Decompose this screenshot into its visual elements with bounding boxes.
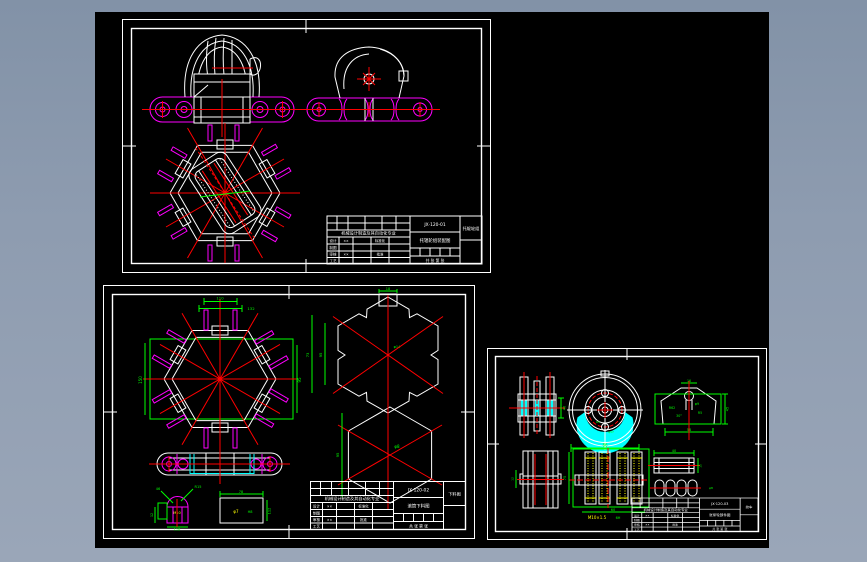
dim-dome-t: 12 xyxy=(150,513,154,517)
check-label: 审核 xyxy=(329,252,337,257)
dim-sect-h: 75 xyxy=(563,476,567,480)
dimension-lines xyxy=(654,450,698,473)
dimension-lines xyxy=(220,491,267,521)
assembly-name: 托辊轮组 xyxy=(463,225,480,232)
drawing-title: 托辊轮组装配图 xyxy=(420,237,451,244)
hexagon-assembly-dimensioned: 150 95 110 132 xyxy=(138,296,302,461)
pulley-section-view: 40 xyxy=(509,372,567,438)
dim-pent-ang: 30° xyxy=(676,414,682,418)
centerlines xyxy=(142,79,302,137)
dim-rect-w: 78 xyxy=(239,490,243,494)
dim-plan-t: 12 xyxy=(511,477,515,481)
dimension-lines xyxy=(145,298,297,415)
sheet-border xyxy=(487,348,767,540)
plate-detail-view: 78 112 φ7 H8 xyxy=(220,490,272,523)
dome-detail-view: 118 12 R15 46 M10 xyxy=(150,485,201,532)
dim-bar-l: 40 xyxy=(672,449,676,453)
design-label: 设计 xyxy=(329,238,337,243)
dim-pent-r: R62 xyxy=(669,406,675,410)
dim-pent-bore: φ9 xyxy=(695,402,699,406)
dim-roller-d: φ8 xyxy=(709,486,713,490)
hexagon-assembly-view xyxy=(150,123,300,263)
signature: ×× xyxy=(645,524,649,527)
wheel-front-view: 86 φ57 R4 xyxy=(567,370,643,453)
project-name: 机械设计制造及其自动化专业 xyxy=(644,507,688,512)
dim-hex2-bore: φ8 xyxy=(394,444,400,449)
signature: ×× xyxy=(327,505,333,509)
std-label: 标准化 xyxy=(375,238,386,243)
frame-plan-view: 12 xyxy=(511,451,565,508)
title-block: 机械设计制造及其自动化专业 设计 制图 审核 工艺 ×× ×× 标准化 批准 J… xyxy=(632,498,758,532)
dim-sect-w: 60 xyxy=(611,508,615,512)
dim-hex2-h: 95 xyxy=(335,452,340,457)
drawing-title: 张紧轮部件图 xyxy=(709,513,731,518)
std-label: 标准化 xyxy=(671,514,680,518)
dim-rect-bore: φ7 xyxy=(233,509,239,514)
approve-label: 批准 xyxy=(377,252,384,257)
part-number: JX·120-01 xyxy=(423,222,445,228)
centerlines xyxy=(517,454,564,505)
centerlines xyxy=(149,445,290,484)
centering-marks xyxy=(103,285,475,539)
dim-notch-h1: 73 xyxy=(305,352,310,357)
thread-callout: M10×1.5 xyxy=(588,515,607,520)
dim-hex-height: 95 xyxy=(297,377,302,383)
signature: ×× xyxy=(327,518,333,522)
front-view-pulley-bracket xyxy=(142,35,302,137)
dim-pulley-w: 40 xyxy=(563,406,567,410)
draft-label: 制图 xyxy=(329,245,337,250)
bracket-plate-view: 58 16 45 R62 φ9 R5 30° xyxy=(655,379,730,440)
sheet-border xyxy=(122,19,491,273)
assembly-name: 绞车 xyxy=(746,504,753,509)
draft-label: 制图 xyxy=(634,518,640,522)
craft-label: 工艺 xyxy=(329,258,337,263)
center-cross xyxy=(597,402,613,418)
roller-bar-view: 40 15 φ8 xyxy=(648,449,713,496)
approve-label: 批准 xyxy=(360,517,367,522)
dim-stud-span2: 132 xyxy=(247,306,255,311)
dim-hex-width: 150 xyxy=(138,376,143,384)
fit-callout: 6H xyxy=(616,516,621,520)
dim-pent-r2: R5 xyxy=(698,411,702,415)
dim-stud-span1: 110 xyxy=(216,296,224,301)
project-name: 机械设计制造及其自动化专业 xyxy=(341,230,395,237)
centerlines xyxy=(569,448,649,508)
craft-label: 工艺 xyxy=(634,528,640,532)
dim-dome-w: 118 xyxy=(174,528,181,532)
dim-wheel-r: R4 xyxy=(596,420,600,424)
assembly-name: 下料图 xyxy=(448,491,461,498)
dim-wheel-od: 86 xyxy=(602,443,608,448)
cad-viewer-window: 机械设计制造及其自动化专业 设计 制图 审核 工艺 ×× ×× 标准化 批准 J… xyxy=(0,0,867,562)
design-label: 设计 xyxy=(634,514,640,518)
drawing-title: 滚筒下料图 xyxy=(408,503,431,510)
sheet-note: 共 张 第 张 xyxy=(426,258,445,263)
hex-plate-view: 95 φ8 xyxy=(335,295,442,510)
check-label: 审核 xyxy=(634,523,640,527)
centering-marks xyxy=(122,19,491,273)
link-bar-view xyxy=(149,445,290,484)
dim-notch-tab: 18 xyxy=(386,287,390,291)
signature: ×× xyxy=(645,514,649,517)
dim-notch-h2: 95 xyxy=(318,352,323,357)
project-name: 机械设计制造及其自动化专业 xyxy=(325,495,379,502)
craft-label: 工艺 xyxy=(313,524,321,529)
centerlines xyxy=(338,295,442,510)
part-number: JX·120-02 xyxy=(407,488,429,494)
dim-rect-h: 112 xyxy=(268,508,272,515)
design-label: 设计 xyxy=(313,504,321,509)
dim-pent-h: 45 xyxy=(726,407,730,411)
check-label: 审核 xyxy=(313,517,321,522)
center-cross xyxy=(357,67,381,91)
dimension-lines xyxy=(312,289,397,393)
sheet-border xyxy=(103,285,475,539)
approve-label: 批准 xyxy=(672,523,678,527)
std-label: 标准化 xyxy=(358,504,369,509)
side-view-pulley-bracket xyxy=(300,47,440,121)
sheet-note: 共 张 第 张 xyxy=(409,524,428,529)
sheet-top-drawing: 机械设计制造及其自动化专业 设计 制图 审核 工艺 ×× ×× 标准化 批准 J… xyxy=(122,19,491,273)
signature: ×× xyxy=(343,253,349,257)
sheet-bottom-right-drawing: 40 86 φ57 R4 xyxy=(487,348,767,540)
radial-centerlines xyxy=(143,299,297,461)
dim-rect-fit: H8 xyxy=(248,510,253,514)
dim-dome-a: 46 xyxy=(156,487,160,491)
sheet-note: 共 张 第 张 xyxy=(712,527,727,532)
assembly-section-view: 75 60 M10×1.5 6H xyxy=(563,448,649,520)
drawing-canvas[interactable]: 机械设计制造及其自动化专业 设计 制图 审核 工艺 ×× ×× 标准化 批准 J… xyxy=(95,12,769,548)
dimension-lines xyxy=(155,489,193,527)
dim-dome-r: R15 xyxy=(195,485,202,489)
dim-wheel-hub: φ57 xyxy=(608,430,614,434)
part-number: JX·120-03 xyxy=(710,502,728,506)
sheet-bottom-left-drawing: 150 95 110 132 18 73 95 φ14 9 xyxy=(103,285,475,539)
dim-bar-h: 15 xyxy=(699,464,703,468)
centering-marks xyxy=(487,348,767,540)
signature: ×× xyxy=(343,239,349,243)
radial-centerlines xyxy=(150,123,300,263)
draft-label: 制图 xyxy=(313,511,321,516)
notched-hex-plate-view: 18 73 95 φ14 xyxy=(305,287,443,413)
title-block: 机械设计制造及其自动化专业 设计 制图 审核 工艺 ×× ×× 标准化 批准 J… xyxy=(327,216,482,264)
